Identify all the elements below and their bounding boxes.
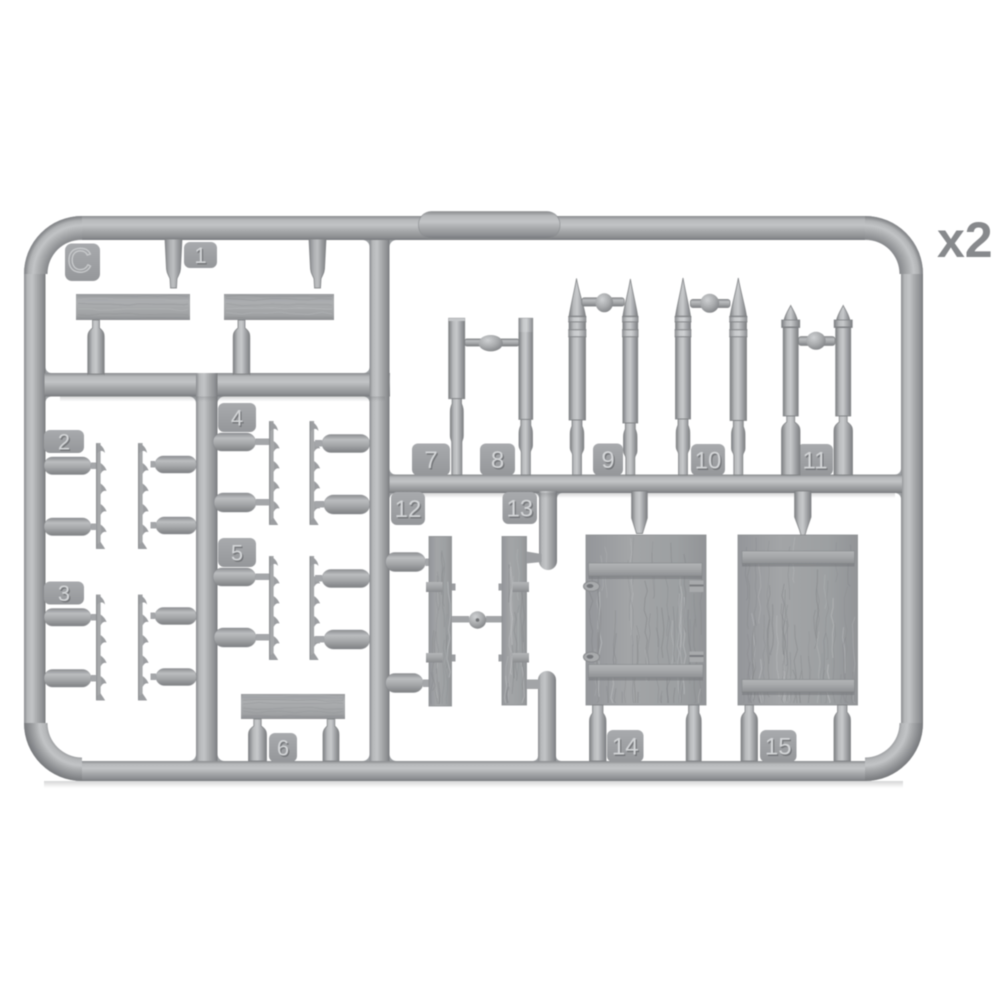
svg-text:C: C [67,242,92,280]
svg-text:13: 13 [506,496,533,523]
svg-text:1: 1 [194,243,206,268]
svg-text:7: 7 [424,447,437,474]
svg-text:6: 6 [277,735,289,760]
svg-text:11: 11 [803,447,828,474]
svg-text:x2: x2 [937,212,993,268]
svg-text:8: 8 [491,447,504,474]
svg-text:12: 12 [395,496,422,523]
svg-text:14: 14 [612,734,639,761]
svg-text:10: 10 [695,447,722,474]
svg-text:5: 5 [231,540,243,565]
svg-text:2: 2 [58,429,70,454]
svg-text:3: 3 [58,581,70,606]
svg-text:4: 4 [231,405,243,430]
svg-text:15: 15 [765,734,792,761]
svg-text:9: 9 [601,447,614,474]
